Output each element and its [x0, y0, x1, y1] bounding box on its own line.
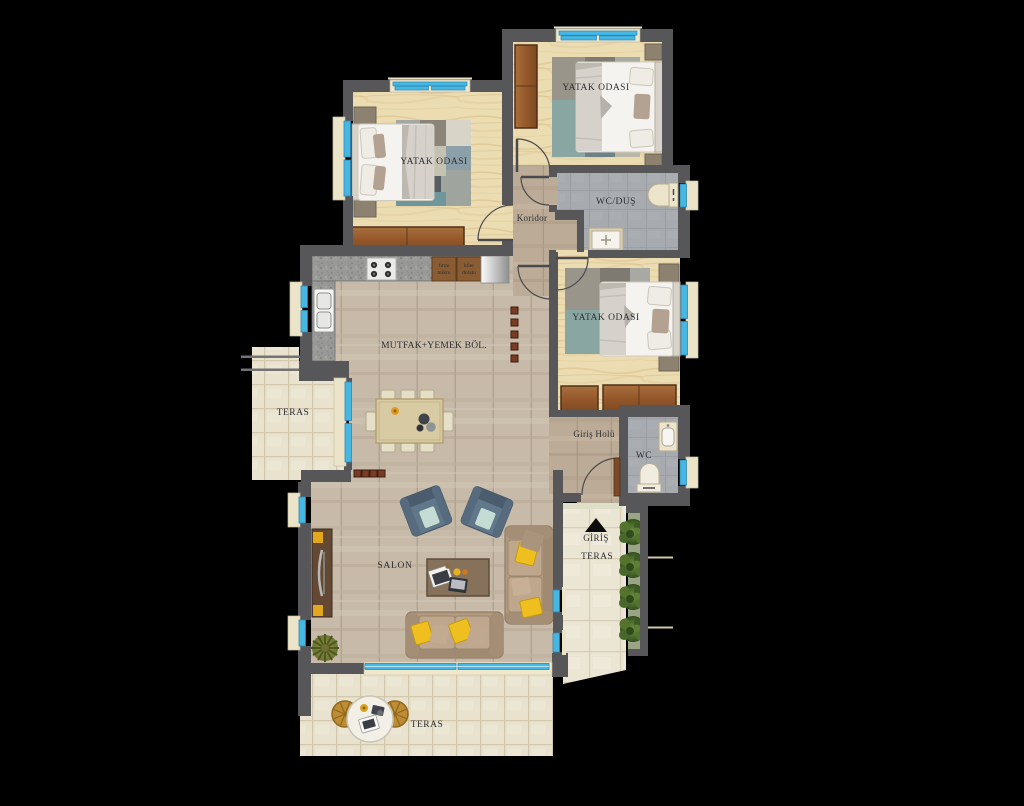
svg-text:TERAS: TERAS [411, 720, 444, 730]
svg-text:SALON: SALON [377, 561, 412, 571]
svg-text:GİRİŞ: GİRİŞ [583, 533, 609, 543]
svg-text:WC/DUŞ: WC/DUŞ [596, 197, 636, 207]
svg-text:YATAK ODASI: YATAK ODASI [562, 83, 629, 93]
svg-text:WC: WC [636, 451, 652, 461]
svg-text:fırın/: fırın/ [439, 262, 450, 269]
svg-text:Koridor: Koridor [517, 213, 548, 223]
svg-text:TERAS: TERAS [277, 408, 310, 418]
svg-text:TERAS: TERAS [581, 552, 613, 562]
svg-text:YATAK ODASI: YATAK ODASI [572, 313, 639, 323]
svg-text:mikro: mikro [437, 270, 450, 276]
svg-text:Giriş Holü: Giriş Holü [573, 429, 614, 439]
svg-text:YATAK ODASI: YATAK ODASI [400, 157, 467, 167]
svg-text:dolabı: dolabı [462, 270, 476, 276]
svg-text:kiler: kiler [464, 263, 474, 269]
svg-text:MUTFAK+YEMEK BÖL.: MUTFAK+YEMEK BÖL. [381, 339, 487, 351]
